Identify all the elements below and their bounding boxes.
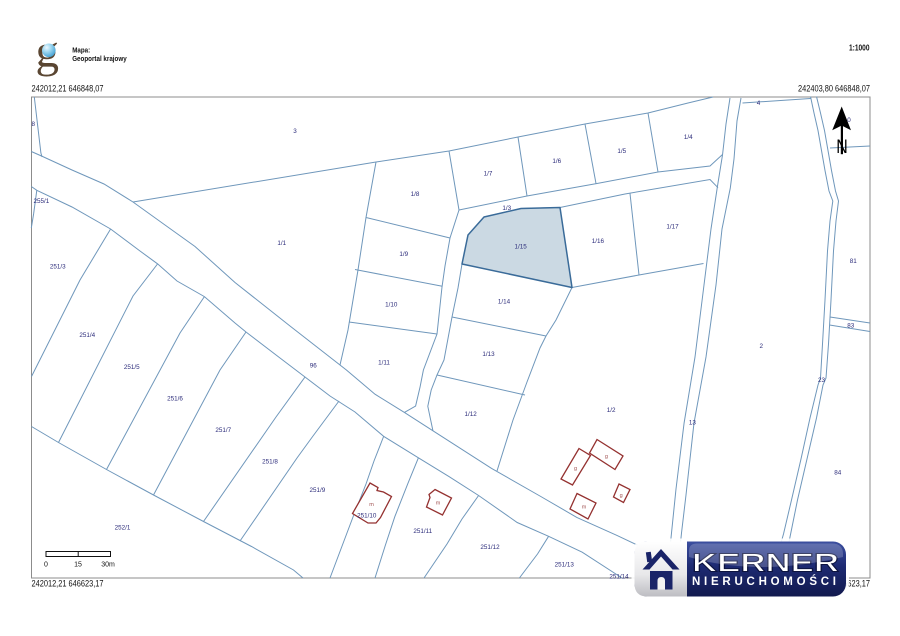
svg-text:242403,80 646848,07: 242403,80 646848,07 [798, 84, 870, 94]
svg-text:1/9: 1/9 [399, 251, 408, 258]
svg-text:1/13: 1/13 [482, 351, 495, 358]
svg-text:4: 4 [757, 100, 761, 107]
svg-text:255/1: 255/1 [34, 198, 50, 205]
svg-text:251/4: 251/4 [79, 332, 95, 339]
svg-text:1/7: 1/7 [484, 171, 493, 178]
svg-text:251/8: 251/8 [262, 459, 278, 466]
svg-text:1/8: 1/8 [411, 191, 420, 198]
svg-text:251/6: 251/6 [167, 396, 183, 403]
svg-text:1/4: 1/4 [684, 134, 693, 141]
svg-text:NIERUCHOMOŚCI: NIERUCHOMOŚCI [692, 575, 836, 588]
svg-text:g: g [605, 454, 608, 460]
svg-text:1/2: 1/2 [607, 407, 616, 414]
svg-text:13: 13 [689, 419, 697, 426]
svg-text:1/3: 1/3 [502, 205, 511, 212]
svg-text:1/6: 1/6 [552, 158, 561, 165]
svg-text:g: g [620, 493, 623, 499]
svg-text:1/17: 1/17 [666, 223, 679, 230]
svg-text:1/1: 1/1 [277, 240, 286, 247]
svg-text:96: 96 [310, 363, 318, 370]
svg-text:1:1000: 1:1000 [849, 44, 870, 53]
svg-text:m: m [369, 502, 374, 508]
svg-text:3: 3 [293, 128, 297, 135]
svg-text:0: 0 [44, 562, 48, 569]
svg-text:252/1: 252/1 [115, 525, 131, 532]
svg-text:Geoportal krajowy: Geoportal krajowy [72, 54, 127, 63]
svg-text:242012,21 646623,17: 242012,21 646623,17 [32, 579, 104, 589]
svg-text:g: g [574, 466, 577, 472]
svg-text:251/13: 251/13 [555, 562, 575, 569]
svg-text:8: 8 [32, 121, 36, 128]
svg-text:251/10: 251/10 [357, 512, 377, 519]
svg-text:1/16: 1/16 [592, 238, 605, 245]
svg-text:15: 15 [74, 562, 82, 569]
svg-text:23: 23 [818, 377, 826, 384]
svg-text:251/9: 251/9 [310, 487, 326, 494]
svg-text:N: N [836, 137, 848, 158]
svg-text:1/5: 1/5 [617, 148, 626, 155]
svg-text:242012,21 646848,07: 242012,21 646848,07 [32, 84, 104, 94]
svg-text:81: 81 [850, 258, 858, 265]
svg-text:30m: 30m [101, 562, 115, 569]
svg-text:m: m [436, 500, 441, 506]
svg-text:251/14: 251/14 [609, 573, 629, 580]
svg-text:251/5: 251/5 [124, 364, 140, 371]
svg-text:83: 83 [847, 323, 855, 330]
svg-text:1/15: 1/15 [514, 244, 527, 251]
svg-text:1/12: 1/12 [464, 411, 477, 418]
svg-text:251/7: 251/7 [215, 427, 231, 434]
svg-text:2: 2 [760, 343, 764, 350]
svg-text:1/11: 1/11 [378, 360, 390, 367]
svg-text:84: 84 [834, 470, 842, 477]
svg-text:251/12: 251/12 [480, 544, 500, 551]
svg-text:1/14: 1/14 [498, 299, 511, 306]
svg-text:251/3: 251/3 [50, 264, 66, 271]
svg-text:m: m [582, 504, 587, 510]
svg-text:251/11: 251/11 [413, 528, 432, 535]
svg-text:1/10: 1/10 [385, 301, 398, 308]
